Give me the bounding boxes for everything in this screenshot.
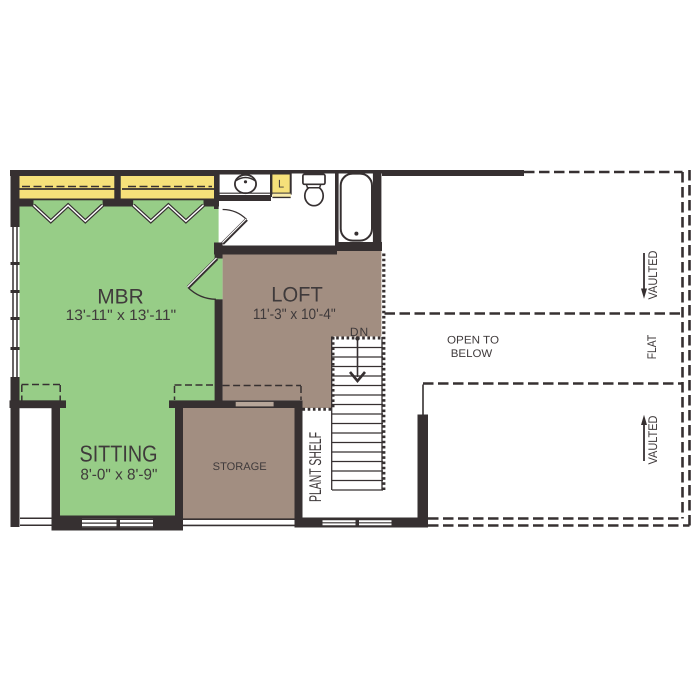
svg-text:BELOW: BELOW [451, 348, 493, 360]
svg-text:11'-3" x 10'-4": 11'-3" x 10'-4" [253, 306, 336, 323]
svg-text:DN: DN [350, 325, 369, 339]
svg-text:LOFT: LOFT [271, 284, 323, 307]
svg-text:VAULTED: VAULTED [646, 416, 660, 465]
svg-text:MBR: MBR [97, 286, 144, 309]
svg-text:PLANT SHELF: PLANT SHELF [306, 432, 325, 502]
svg-text:13'-11" x 13'-11": 13'-11" x 13'-11" [66, 307, 177, 324]
svg-text:FLAT: FLAT [645, 334, 659, 359]
svg-text:OPEN TO: OPEN TO [447, 335, 499, 347]
svg-text:VAULTED: VAULTED [646, 251, 660, 300]
svg-text:STORAGE: STORAGE [213, 461, 267, 473]
svg-text:8'-0" x 8'-9": 8'-0" x 8'-9" [80, 467, 157, 484]
svg-text:L: L [278, 179, 284, 191]
svg-text:SITTING: SITTING [80, 441, 158, 467]
